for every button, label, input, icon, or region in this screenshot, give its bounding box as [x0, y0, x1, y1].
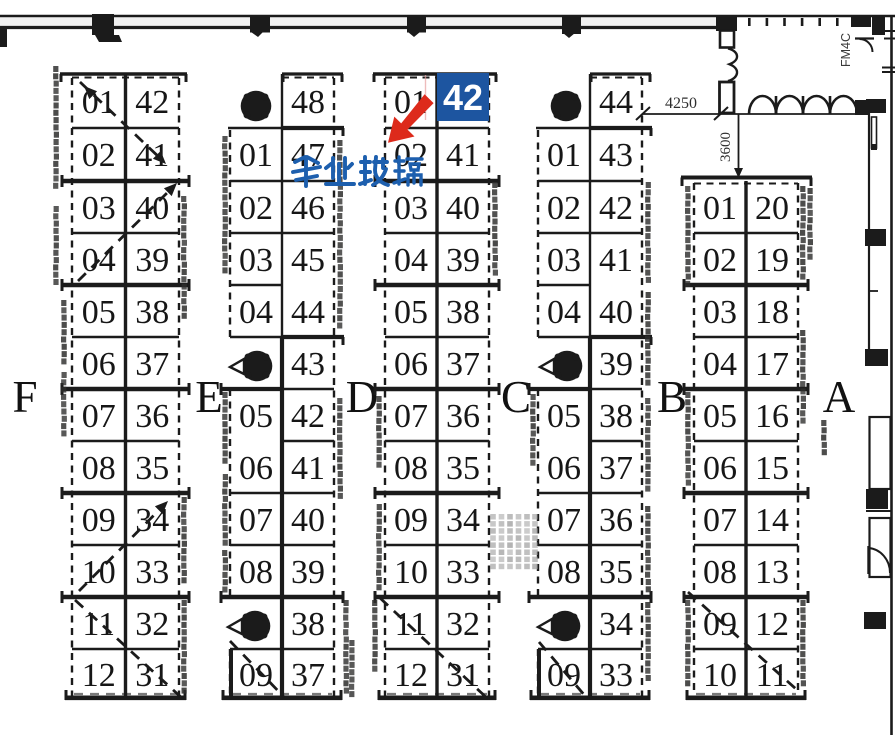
svg-text:09: 09	[394, 502, 428, 539]
svg-text:15: 15	[755, 450, 789, 487]
svg-text:34: 34	[599, 606, 633, 643]
svg-text:06: 06	[239, 450, 273, 487]
svg-text:3600: 3600	[718, 132, 734, 162]
svg-text:39: 39	[599, 346, 633, 383]
svg-text:35: 35	[599, 554, 633, 591]
svg-text:32: 32	[446, 606, 480, 643]
svg-text:44: 44	[291, 294, 325, 331]
svg-text:37: 37	[599, 450, 633, 487]
svg-text:14: 14	[755, 502, 789, 539]
svg-text:05: 05	[239, 398, 273, 435]
svg-text:07: 07	[82, 398, 116, 435]
svg-text:01: 01	[239, 137, 273, 174]
svg-text:43: 43	[599, 137, 633, 174]
svg-text:38: 38	[291, 606, 325, 643]
svg-text:03: 03	[547, 242, 581, 279]
svg-text:05: 05	[547, 398, 581, 435]
svg-text:04: 04	[239, 294, 273, 331]
svg-text:06: 06	[703, 450, 737, 487]
svg-text:43: 43	[291, 346, 325, 383]
svg-text:06: 06	[394, 346, 428, 383]
svg-text:A: A	[823, 372, 856, 422]
svg-text:01: 01	[703, 190, 737, 227]
svg-text:13: 13	[755, 554, 789, 591]
svg-text:36: 36	[135, 398, 169, 435]
svg-text:11: 11	[82, 606, 115, 643]
svg-text:02: 02	[703, 242, 737, 279]
svg-text:40: 40	[291, 502, 325, 539]
svg-text:19: 19	[755, 242, 789, 279]
svg-text:08: 08	[239, 554, 273, 591]
svg-text:42: 42	[291, 398, 325, 435]
svg-text:E: E	[195, 372, 223, 422]
svg-text:36: 36	[599, 502, 633, 539]
svg-text:41: 41	[599, 242, 633, 279]
svg-text:03: 03	[82, 190, 116, 227]
svg-text:41: 41	[446, 137, 480, 174]
svg-text:44: 44	[599, 84, 633, 121]
svg-text:05: 05	[82, 294, 116, 331]
svg-text:D: D	[346, 372, 379, 422]
svg-text:37: 37	[291, 657, 325, 694]
svg-text:16: 16	[755, 398, 789, 435]
svg-text:11: 11	[756, 657, 789, 694]
svg-text:37: 37	[135, 346, 169, 383]
svg-text:05: 05	[394, 294, 428, 331]
svg-text:10: 10	[703, 657, 737, 694]
svg-text:17: 17	[755, 346, 789, 383]
svg-text:07: 07	[547, 502, 581, 539]
svg-text:04: 04	[394, 242, 428, 279]
svg-text:08: 08	[547, 554, 581, 591]
svg-text:39: 39	[446, 242, 480, 279]
svg-text:03: 03	[394, 190, 428, 227]
svg-text:10: 10	[394, 554, 428, 591]
svg-text:34: 34	[446, 502, 480, 539]
svg-text:48: 48	[291, 84, 325, 121]
svg-text:38: 38	[599, 398, 633, 435]
svg-text:04: 04	[547, 294, 581, 331]
svg-text:36: 36	[446, 398, 480, 435]
svg-text:FM4C: FM4C	[839, 33, 853, 67]
svg-text:02: 02	[239, 190, 273, 227]
svg-text:08: 08	[82, 450, 116, 487]
svg-text:41: 41	[135, 137, 169, 174]
svg-text:06: 06	[547, 450, 581, 487]
svg-text:20: 20	[755, 190, 789, 227]
svg-text:F: F	[12, 372, 37, 422]
svg-text:42: 42	[135, 84, 169, 121]
svg-text:40: 40	[446, 190, 480, 227]
svg-text:08: 08	[703, 554, 737, 591]
svg-text:12: 12	[394, 657, 428, 694]
svg-text:33: 33	[446, 554, 480, 591]
svg-text:01: 01	[547, 137, 581, 174]
svg-text:38: 38	[446, 294, 480, 331]
svg-text:39: 39	[291, 554, 325, 591]
svg-text:09: 09	[239, 657, 273, 694]
svg-text:31: 31	[135, 657, 169, 694]
svg-text:45: 45	[291, 242, 325, 279]
svg-text:02: 02	[82, 137, 116, 174]
svg-text:07: 07	[394, 398, 428, 435]
svg-text:12: 12	[755, 606, 789, 643]
svg-text:B: B	[657, 372, 687, 422]
svg-text:05: 05	[703, 398, 737, 435]
svg-text:07: 07	[239, 502, 273, 539]
svg-text:07: 07	[703, 502, 737, 539]
svg-text:C: C	[501, 372, 531, 422]
svg-text:40: 40	[599, 294, 633, 331]
svg-text:35: 35	[446, 450, 480, 487]
svg-text:32: 32	[135, 606, 169, 643]
svg-text:33: 33	[599, 657, 633, 694]
svg-text:41: 41	[291, 450, 325, 487]
svg-text:33: 33	[135, 554, 169, 591]
svg-text:38: 38	[135, 294, 169, 331]
svg-text:02: 02	[547, 190, 581, 227]
svg-text:37: 37	[446, 346, 480, 383]
svg-text:08: 08	[394, 450, 428, 487]
svg-text:42: 42	[443, 77, 483, 118]
svg-text:4250: 4250	[665, 95, 697, 112]
svg-text:09: 09	[82, 502, 116, 539]
svg-text:06: 06	[82, 346, 116, 383]
svg-text:35: 35	[135, 450, 169, 487]
svg-text:31: 31	[446, 657, 480, 694]
svg-text:09: 09	[547, 657, 581, 694]
svg-text:03: 03	[703, 294, 737, 331]
svg-text:46: 46	[291, 190, 325, 227]
svg-text:39: 39	[135, 242, 169, 279]
svg-text:12: 12	[82, 657, 116, 694]
svg-text:03: 03	[239, 242, 273, 279]
svg-text:04: 04	[703, 346, 737, 383]
svg-text:42: 42	[599, 190, 633, 227]
svg-text:18: 18	[755, 294, 789, 331]
